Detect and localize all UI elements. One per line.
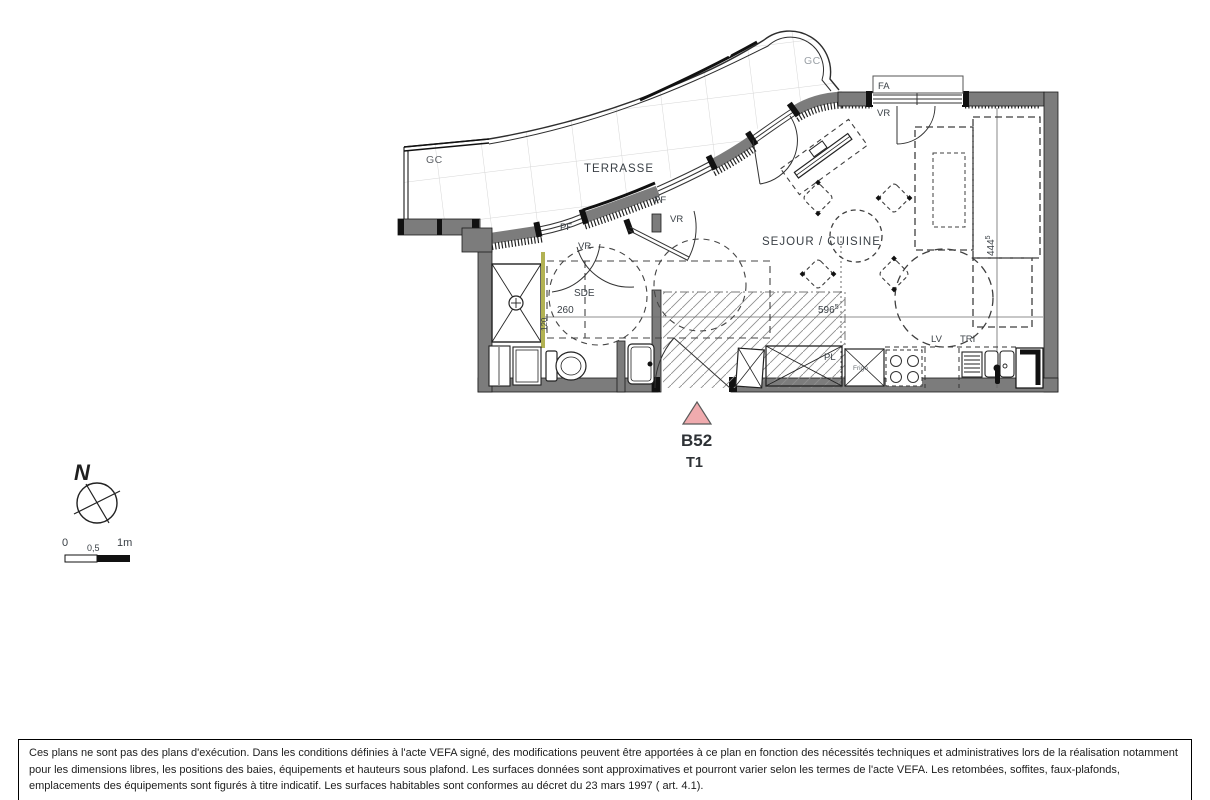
sofa-cushion	[933, 153, 965, 227]
living-furniture	[830, 117, 1040, 347]
fridge-label: Frigo	[853, 365, 868, 372]
living-room-label: SEJOUR / CUISINE	[762, 236, 881, 248]
wall-top-right-of-fa	[963, 92, 1044, 106]
scale-segment-black	[97, 555, 130, 562]
kitchen-tall-unit	[736, 348, 765, 388]
sde-cabinet-2	[513, 347, 541, 385]
floor-plan-page: GC GC TERRASSE	[0, 0, 1210, 800]
terrace-gc-label-left: GC	[426, 154, 443, 166]
window-fa: FA VR	[872, 76, 963, 119]
scale-zero: 0	[62, 537, 68, 549]
tv-sideboard	[781, 119, 868, 194]
washbasin-tap	[648, 362, 653, 367]
unit-code: B52	[681, 431, 712, 450]
fa-label: FA	[878, 81, 890, 92]
dim-120: 120	[540, 317, 549, 331]
scale-half: 0,5	[87, 543, 100, 553]
pf2-label: PF	[654, 195, 666, 206]
fa-vr-label: VR	[877, 108, 890, 119]
sde-cabinet-1	[489, 346, 510, 386]
shower-screen	[541, 252, 545, 348]
wall-wc-partition	[617, 341, 625, 392]
terrace-gc-label-right: GC	[804, 55, 821, 67]
wc-tank	[546, 351, 557, 381]
pf1-vr-label: VR	[578, 241, 591, 252]
legal-disclaimer: Ces plans ne sont pas des plans d'exécut…	[18, 739, 1192, 800]
pf2-vr-label: VR	[670, 214, 683, 225]
sde-room-label: SDE	[574, 288, 595, 299]
compass-north-label: N	[74, 460, 91, 485]
wall-left-stub	[462, 228, 492, 252]
terrace-room-label: TERRASSE	[584, 163, 654, 175]
dim-260: 260	[557, 305, 574, 316]
unit-marker: B52 T1	[681, 402, 712, 471]
scale-bar: 0 0,5 1m	[62, 537, 132, 562]
scale-segment-white	[65, 555, 97, 562]
pf2-door-leaf	[628, 230, 687, 260]
sde-turning-circle	[549, 247, 647, 345]
pf3-door-leaf	[753, 140, 760, 184]
scale-one: 1m	[117, 537, 132, 549]
terrace: GC GC TERRASSE	[380, 20, 880, 250]
sofa-chaise	[915, 127, 973, 250]
pf1-label: PF	[560, 222, 572, 233]
wall-sde-partition-top	[652, 214, 661, 232]
floor-plan-svg: GC GC TERRASSE	[0, 0, 1210, 738]
compass: N	[74, 460, 120, 523]
dim-444: 4445	[985, 235, 997, 256]
fa-swing	[897, 106, 935, 144]
sofa-main	[973, 117, 1040, 258]
pf1-swing-left	[552, 244, 600, 292]
unit-type: T1	[686, 455, 703, 471]
dishwasher-label: LV	[931, 334, 943, 345]
sink-bowl-2	[1000, 351, 1014, 377]
wc-bowl	[556, 352, 586, 380]
round-rug	[895, 249, 993, 347]
pf2-swing	[687, 211, 696, 261]
entrance-triangle-icon	[683, 402, 711, 424]
pl-label: PL	[824, 352, 836, 363]
wall-right	[1044, 92, 1058, 392]
